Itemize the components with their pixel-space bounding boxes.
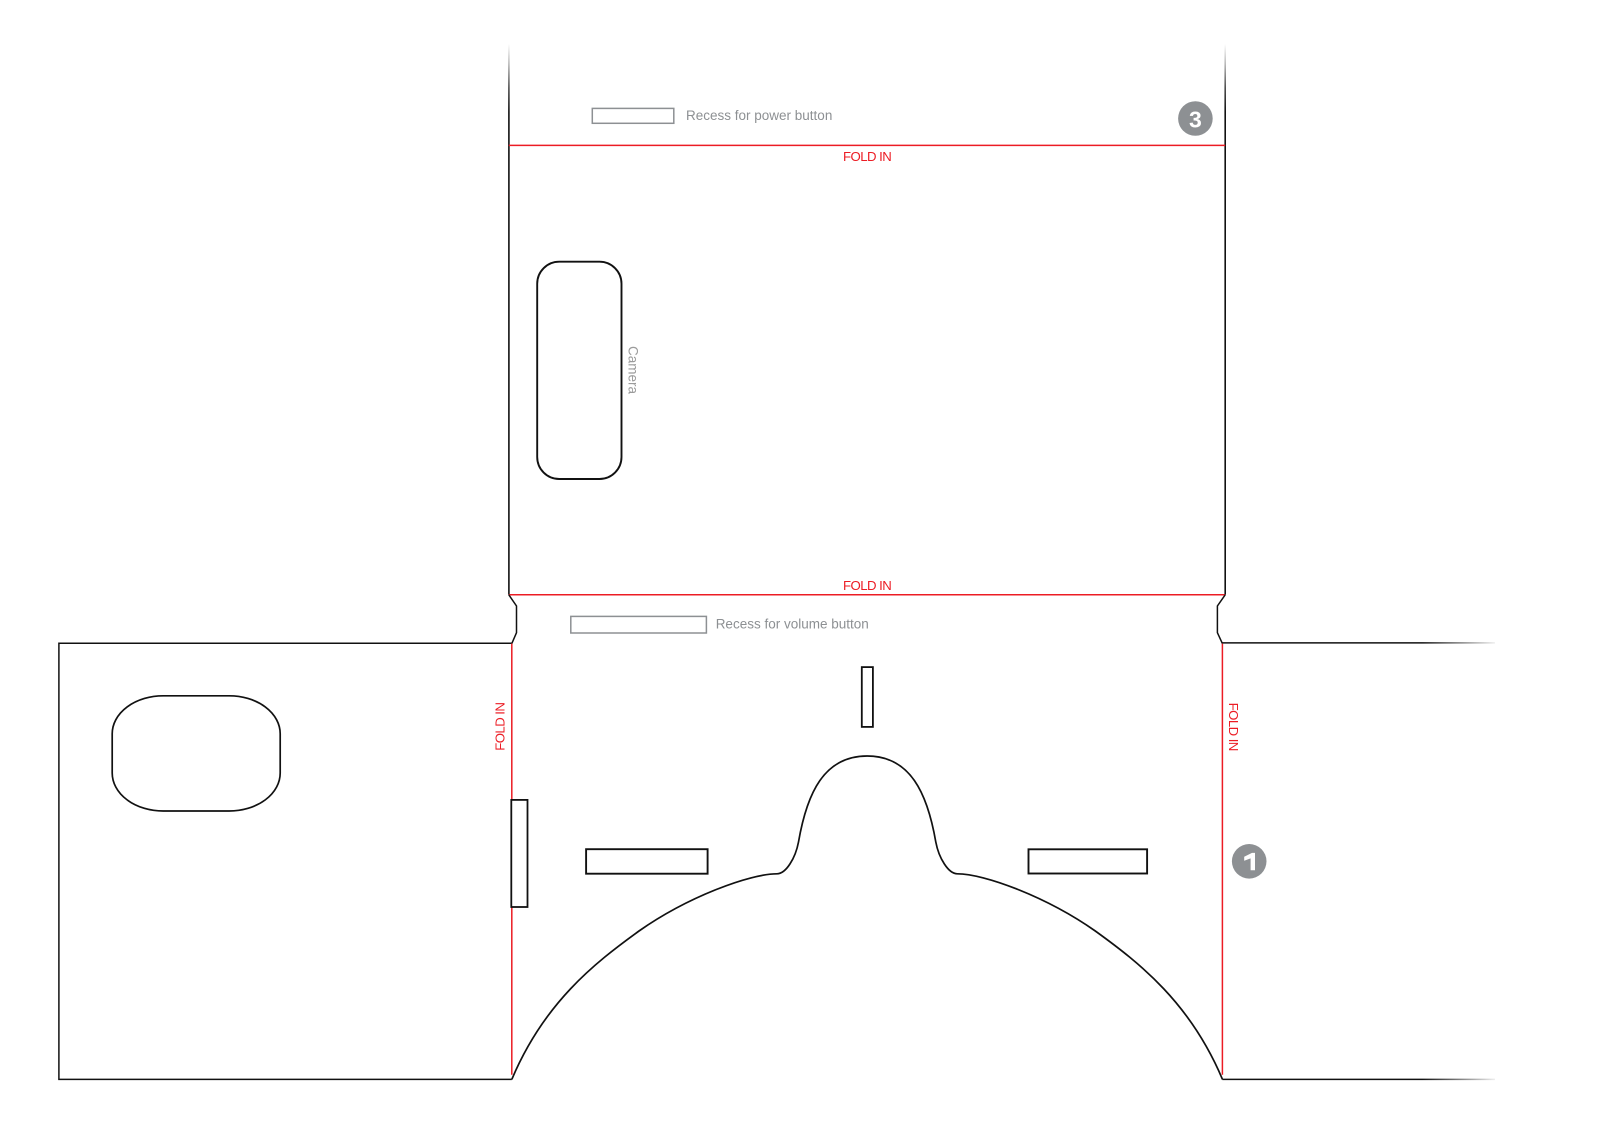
svg-text:FOLD IN: FOLD IN xyxy=(843,149,891,164)
svg-text:FOLD IN: FOLD IN xyxy=(843,578,891,593)
svg-text:FOLD IN: FOLD IN xyxy=(1226,703,1241,751)
svg-text:FOLD IN: FOLD IN xyxy=(493,703,508,751)
svg-text:3: 3 xyxy=(1189,107,1202,133)
svg-text:Recess for volume button: Recess for volume button xyxy=(716,616,869,631)
svg-text:Recess for power button: Recess for power button xyxy=(686,108,832,123)
svg-text:Camera: Camera xyxy=(626,346,641,395)
